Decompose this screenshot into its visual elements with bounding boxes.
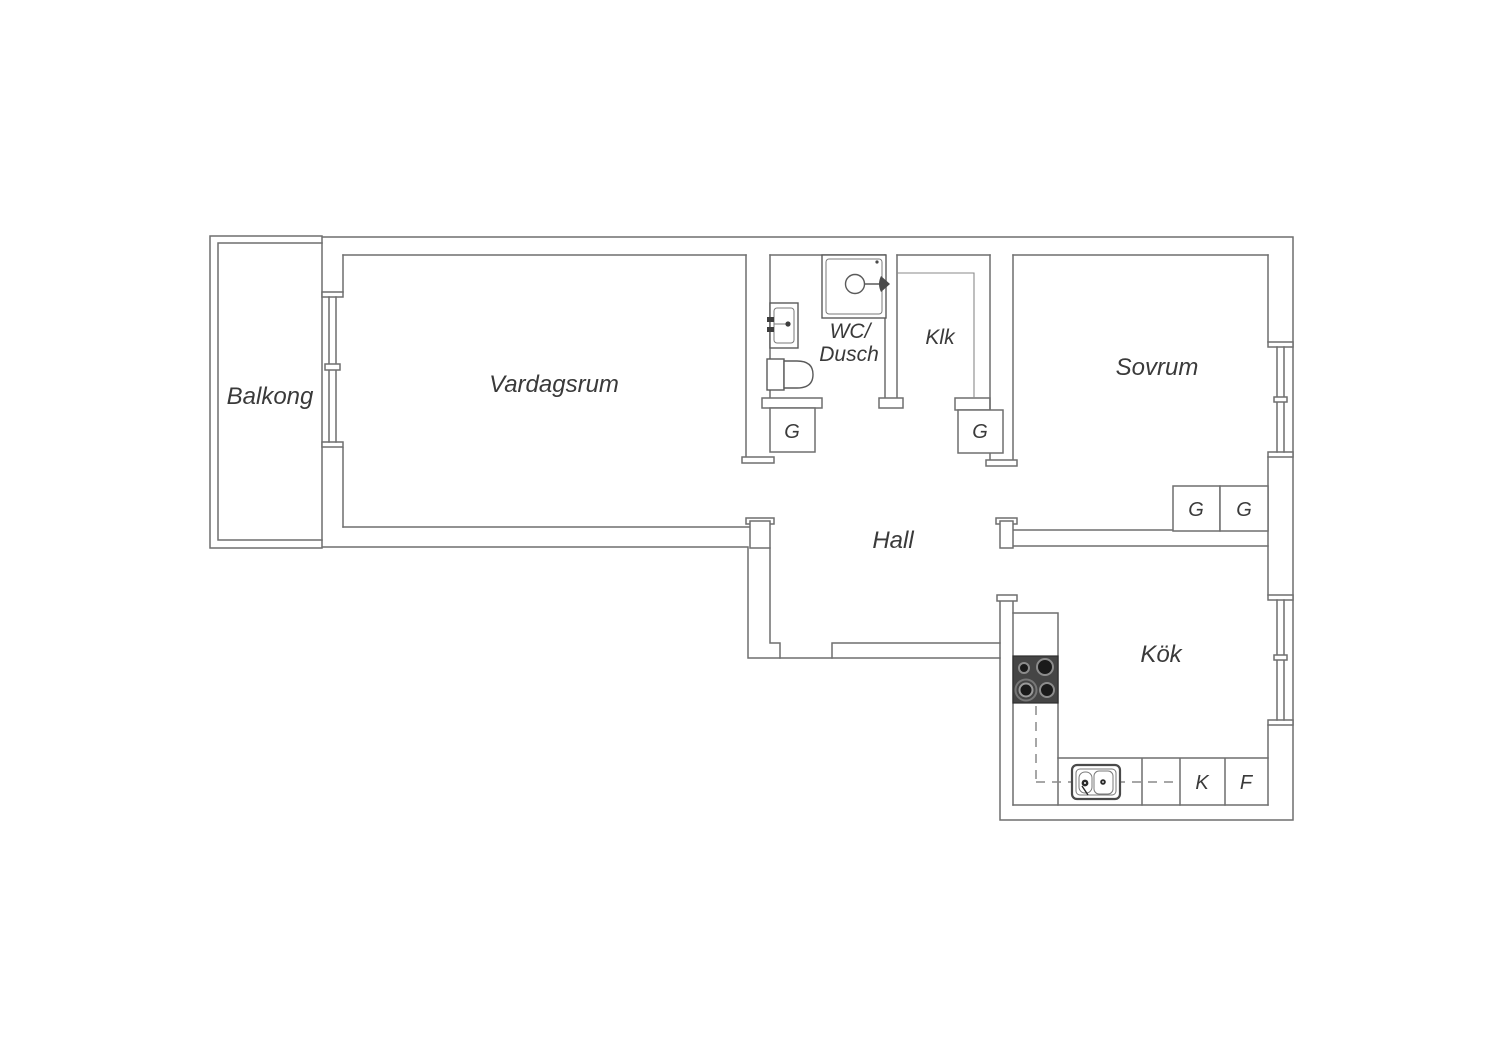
sovrum-wardrobe-label-1: G bbox=[1188, 499, 1204, 521]
unit-labels: G G G G K F bbox=[784, 421, 1254, 794]
wc-wardrobe-label: G bbox=[784, 421, 800, 443]
kitchen-door-jamb-cap bbox=[997, 595, 1017, 601]
floor-plan-svg: Balkong Vardagsrum WC/ Dusch Klk Sovrum … bbox=[0, 0, 1500, 1060]
washbasin-icon bbox=[767, 303, 798, 348]
shower-icon bbox=[822, 255, 890, 318]
balcony-window-door-icon bbox=[322, 292, 343, 447]
sovrum-wall-stub bbox=[1000, 521, 1013, 548]
freezer-label: F bbox=[1240, 772, 1254, 794]
livingroom-door-jamb-cap bbox=[742, 457, 774, 463]
klk-door-jamb-cap bbox=[879, 398, 903, 408]
stove-icon bbox=[1013, 656, 1058, 703]
sovrum-wardrobe-label-2: G bbox=[1236, 499, 1252, 521]
room-labels: Balkong Vardagsrum WC/ Dusch Klk Sovrum … bbox=[227, 320, 1199, 668]
outer-perimeter bbox=[322, 237, 1293, 820]
klk-left-wall bbox=[885, 255, 897, 398]
hall-label: Hall bbox=[872, 527, 914, 554]
vardagsrum-label: Vardagsrum bbox=[489, 371, 619, 398]
livingroom-wall-stub bbox=[750, 521, 770, 548]
fridge-label: K bbox=[1195, 772, 1210, 794]
wc-bottom-wall bbox=[762, 398, 822, 408]
floor-plan: Balkong Vardagsrum WC/ Dusch Klk Sovrum … bbox=[0, 0, 1500, 1060]
wc-dusch-label-line1: WC/ bbox=[830, 320, 873, 343]
sovrum-label: Sovrum bbox=[1116, 354, 1199, 381]
kitchen-left-wall bbox=[1000, 601, 1013, 805]
kitchen-sink-icon bbox=[1072, 765, 1120, 799]
bedroom-window-icon bbox=[1268, 342, 1293, 457]
balkong-label: Balkong bbox=[227, 383, 314, 410]
klk-bottom-wall bbox=[955, 398, 990, 410]
klk-wardrobe-label: G bbox=[972, 421, 988, 443]
walls bbox=[210, 236, 1293, 820]
hall-lower-walls bbox=[770, 548, 1000, 658]
kok-label: Kök bbox=[1140, 641, 1183, 668]
sovrum-bottom-wall bbox=[1013, 530, 1268, 546]
toilet-icon bbox=[767, 359, 813, 390]
sovrum-door-jamb-cap bbox=[986, 460, 1017, 466]
wc-dusch-label-line2: Dusch bbox=[819, 343, 879, 366]
livingroom-wc-wall bbox=[746, 255, 770, 457]
kitchen-window-icon bbox=[1268, 595, 1293, 725]
klk-label: Klk bbox=[925, 326, 956, 349]
